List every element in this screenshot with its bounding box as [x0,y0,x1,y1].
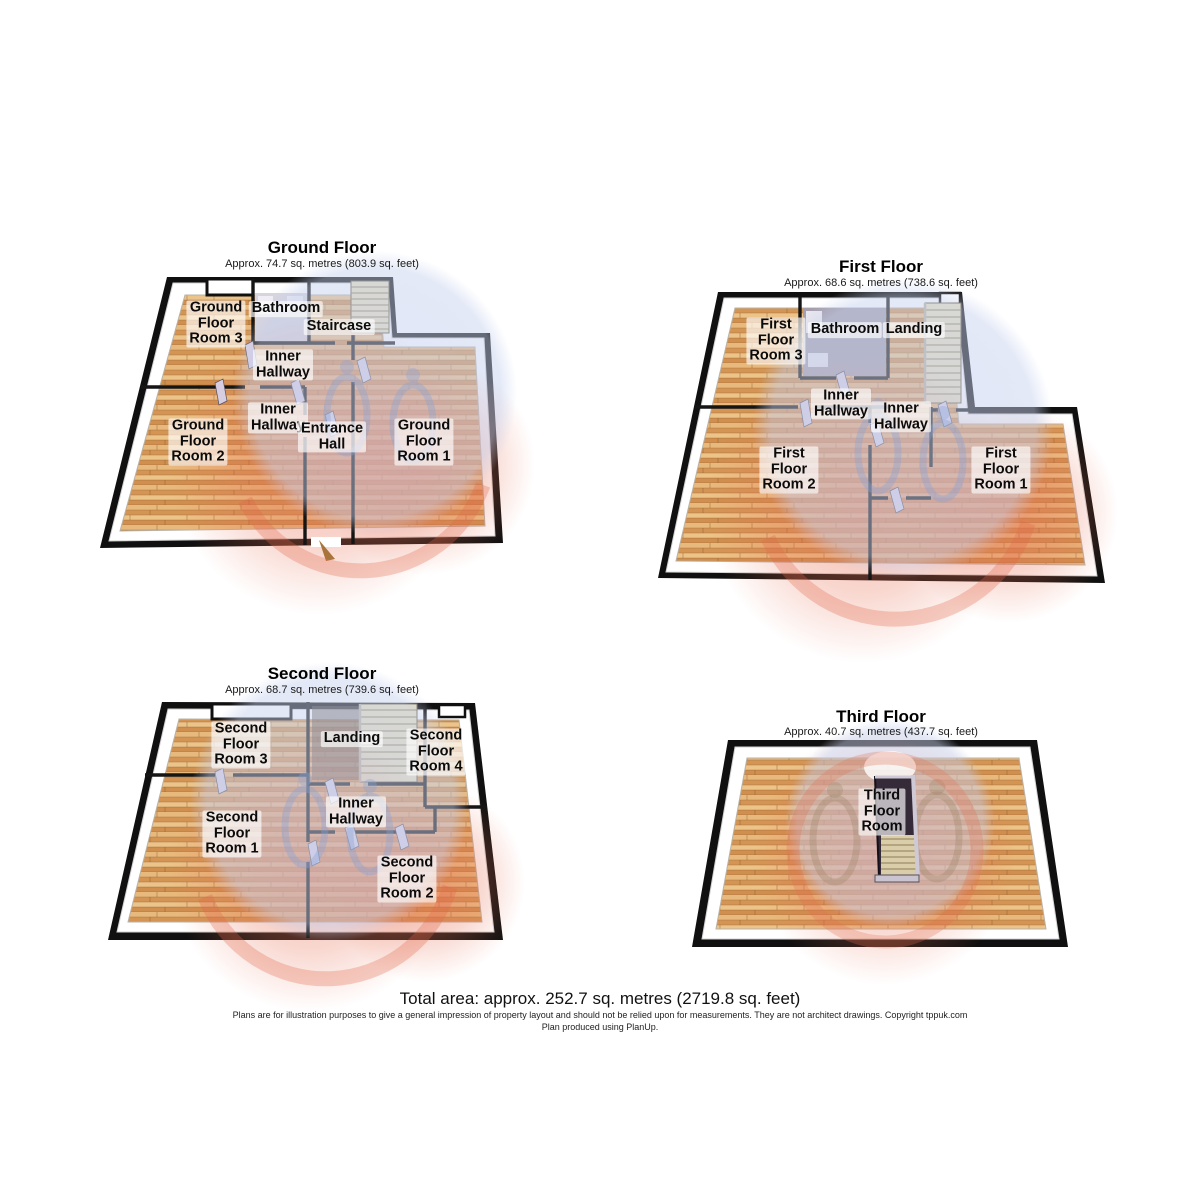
room-label-third-floor-room: Third Floor Room [858,789,905,836]
room-label-ground-floor-room-1: Ground Floor Room 1 [394,419,453,466]
room-label-second-floor-room-1: Second Floor Room 1 [202,811,261,858]
room-label-staircase: Staircase [304,319,375,335]
floor-area-third: Approx. 40.7 sq. metres (437.7 sq. feet) [784,726,978,738]
floor-area-first: Approx. 68.6 sq. metres (738.6 sq. feet) [784,277,978,289]
porch-notch [207,279,253,295]
third-floor-plan [692,718,1068,985]
floor-area-second: Approx. 68.7 sq. metres (739.6 sq. feet) [225,684,419,696]
room-label-second-floor-room-4: Second Floor Room 4 [406,729,465,776]
roof-notch [439,705,465,717]
room-label-second-landing: Landing [321,731,383,747]
room-label-first-landing: Landing [883,322,945,338]
floorplan-page: Ground Floor Approx. 74.7 sq. metres (80… [0,0,1200,1200]
second-floor-plan [108,662,525,1012]
room-label-second-floor-room-2: Second Floor Room 2 [377,856,436,903]
floor-title-third: Third Floor [836,708,926,727]
room-label-second-floor-room-3: Second Floor Room 3 [211,722,270,769]
room-label-ground-floor-room-2: Ground Floor Room 2 [168,419,227,466]
room-label-first-bathroom: Bathroom [808,322,882,338]
room-label-first-inner-hallway-2: Inner Hallway [871,401,931,432]
room-label-first-floor-room-3: First Floor Room 3 [746,318,805,365]
floor-title-first: First Floor [839,258,923,277]
room-label-second-inner-hallway: Inner Hallway [326,796,386,827]
produced-by-text: Plan produced using PlanUp. [542,1022,659,1033]
disclaimer-text: Plans are for illustration purposes to g… [233,1010,968,1021]
floor-area-ground: Approx. 74.7 sq. metres (803.9 sq. feet) [225,258,419,270]
room-label-first-floor-room-1: First Floor Room 1 [971,447,1030,494]
room-label-first-floor-room-2: First Floor Room 2 [759,447,818,494]
room-label-ground-bathroom: Bathroom [249,301,323,317]
room-label-entrance-hall: Entrance Hall [298,421,366,452]
total-area-text: Total area: approx. 252.7 sq. metres (27… [400,989,801,1009]
room-label-ground-inner-hallway-1: Inner Hallway [253,349,313,380]
floor-title-ground: Ground Floor [268,239,377,258]
floor-title-second: Second Floor [268,665,377,684]
room-label-ground-floor-room-3: Ground Floor Room 3 [186,301,245,348]
room-label-first-inner-hallway-1: Inner Hallway [811,388,871,419]
